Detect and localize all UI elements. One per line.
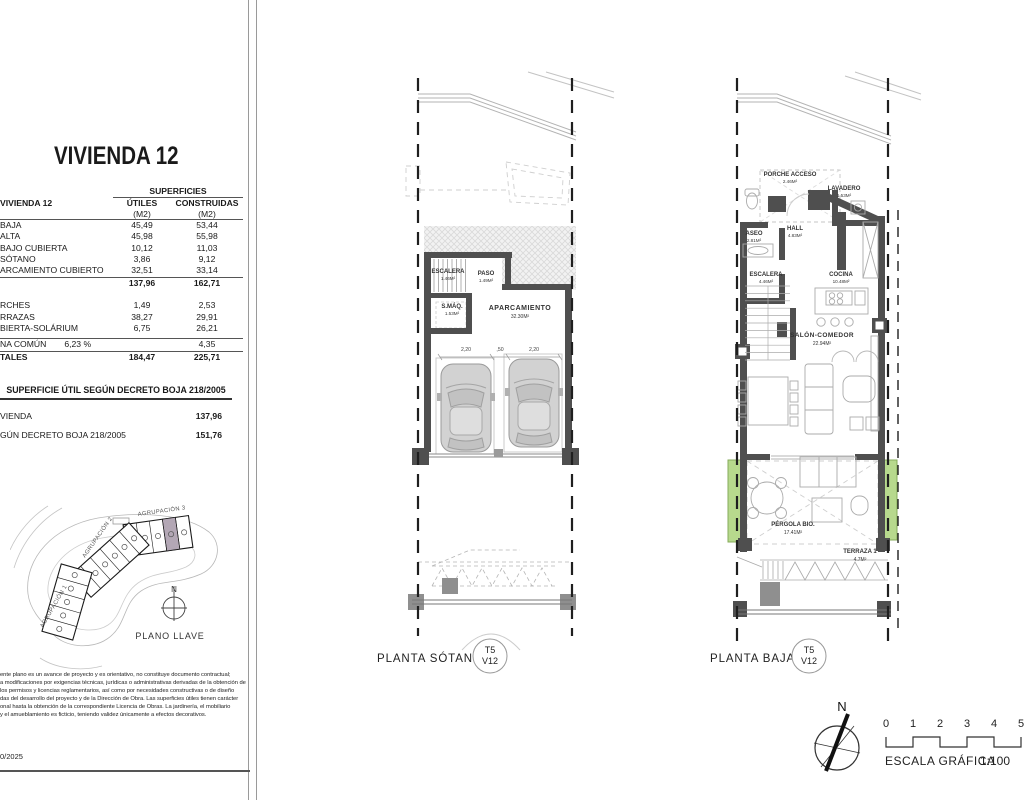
badge-type: T5: [485, 645, 496, 655]
svg-text:3: 3: [964, 718, 970, 730]
exterior-walk-lines: [412, 600, 572, 604]
table-unit-label: VIVIENDA 12: [0, 198, 113, 209]
room-paso-area: 1.49M²: [479, 278, 494, 283]
terrace-post: [760, 582, 780, 606]
graphic-scale-bar: [886, 737, 1021, 747]
scale-tick-labels: 0 1 2 3 4 5: [883, 718, 1024, 730]
terrace-edge-lines: [737, 610, 891, 614]
pouf: [850, 417, 863, 430]
car-right: [505, 359, 563, 447]
table-row: SÓTANO 3,86 9,12: [0, 254, 243, 265]
panel-divider-line: [256, 0, 257, 800]
plan-baja: PORCHE ACCESO 2.46M² LAVADERO 1.53M² ASE…: [705, 70, 1024, 700]
table-row: ARCAMIENTO CUBIERTO 32,51 33,14: [0, 265, 243, 276]
badge-unit: V12: [801, 656, 817, 666]
decreto-row: VIENDA 137,96: [0, 411, 232, 421]
page-title: VIVIENDA 12: [54, 142, 179, 171]
car-left: [437, 364, 495, 452]
outdoor-sofa: [800, 457, 856, 487]
kitchen-island: [815, 288, 868, 314]
room-porche-label: PORCHE ACCESO: [764, 172, 817, 178]
toilet-fixture: [747, 193, 758, 209]
room-lavadero-label: LAVADERO: [828, 186, 861, 192]
room-escalera-label: ESCALERA: [431, 269, 465, 275]
stool: [817, 318, 825, 326]
room-aseo-label: ASEO: [745, 231, 762, 237]
decreto-header: SUPERFICIE ÚTIL SEGÚN DECRETO BOJA 218/2…: [0, 385, 232, 400]
scale-label: ESCALA GRÁFICA: [885, 753, 995, 768]
dim-pier: ,50: [496, 347, 503, 353]
wall-box-window: [876, 322, 884, 330]
decreto-row: GÚN DECRETO BOJA 218/2005 151,76: [0, 430, 232, 440]
room-aseo-area: 2.81M²: [747, 238, 762, 243]
north-compass-icon: [814, 714, 860, 771]
wall-box-window: [739, 348, 747, 356]
key-plan-north-label: N: [171, 585, 177, 594]
outdoor-lounger: [812, 498, 842, 522]
table-row: RRAZAS 38,27 29,91: [0, 312, 243, 323]
exterior-stair-below: [418, 550, 572, 586]
sliding-glass-door: [771, 456, 854, 459]
disclaimer-text: ente plano es un avance de proyecto y es…: [0, 671, 252, 720]
room-hall-label: HALL: [787, 226, 803, 232]
baja-caption: PLANTA BAJA: [710, 653, 795, 665]
site-road-lines: [737, 72, 921, 144]
table-row: RCHES 1,49 2,53: [0, 300, 243, 311]
room-pergola-area: 17.41M²: [784, 530, 803, 536]
stool: [845, 318, 853, 326]
table-common-row: NA COMÚN6,23 % 4,35: [0, 339, 243, 350]
room-pergola-label: PÉRGOLA BIO.: [771, 520, 815, 528]
svg-text:0: 0: [883, 718, 889, 730]
key-plan: AGRUPACIÓN 3 AGRUPACIÓN 2 AGRUPACIÓN 1 N…: [10, 498, 240, 673]
outdoor-table: [751, 482, 783, 514]
baja-room-labels: PORCHE ACCESO 2.46M² LAVADERO 1.53M² ASE…: [745, 172, 877, 563]
site-dashed-shapes: [406, 162, 570, 205]
svg-text:4: 4: [991, 718, 997, 730]
svg-text:2: 2: [937, 718, 943, 730]
badge-unit: V12: [482, 656, 498, 666]
room-aparcamiento-area: 32.30M²: [511, 314, 530, 320]
badge-type: T5: [804, 645, 815, 655]
scale-ratio: 1:100: [980, 754, 1010, 768]
decreto-table: SUPERFICIE ÚTIL SEGÚN DECRETO BOJA 218/2…: [0, 385, 232, 440]
north-label: N: [837, 699, 846, 714]
room-salon-label: SALÓN-COMEDOR: [790, 330, 854, 339]
key-plan-caption: PLANO LLAVE: [135, 631, 204, 641]
armchair: [843, 376, 875, 402]
sink-fixture: [743, 244, 773, 257]
room-cocina-label: COCINA: [829, 272, 853, 278]
dim-bay2: 2,20: [529, 347, 539, 353]
stool: [831, 318, 839, 326]
key-plan-group-1: [42, 564, 92, 640]
footer-north-and-scale: N 0 1 2 3 4 5 ESCALA GRÁFICA 1:100: [780, 695, 1024, 795]
table-row: BAJA 45,49 53,44: [0, 220, 243, 231]
cars: [437, 359, 563, 452]
room-smaq-label: S.MÁQ.: [441, 303, 463, 310]
baja-badge: T5 V12: [792, 639, 826, 673]
col-header-utiles: ÚTILES: [113, 198, 171, 209]
sotano-caption: PLANTA SÓTANO: [377, 652, 483, 665]
svg-text:5: 5: [1018, 718, 1024, 730]
outdoor-chair: [851, 496, 868, 515]
table-group-header: SUPERFICIES: [113, 186, 243, 198]
dining-table: [748, 377, 788, 425]
panel-bottom-rule: [0, 770, 250, 772]
plan-sotano: ESCALERA 1.46M² PASO 1.49M² S.MÁQ. 1.53M…: [370, 70, 615, 700]
pouf: [866, 417, 879, 430]
dim-bay1: 2,20: [461, 347, 471, 353]
table-row: ALTA 45,98 55,98: [0, 231, 243, 242]
room-terraza-label: TERRAZA 1: [843, 549, 877, 555]
door-swing-arc: [787, 194, 809, 216]
green-planters: [728, 460, 897, 542]
room-escalera-area: 1.46M²: [441, 276, 456, 281]
table-subtotal-row: 137,96 162,71: [0, 278, 243, 289]
table-row: BIERTA-SOLÁRIUM 6,75 26,21: [0, 323, 243, 334]
table-total-row: TALES 184,47 225,71: [0, 352, 243, 363]
room-porche-area: 2.46M²: [783, 179, 798, 184]
plot-boundary-lines: [737, 78, 898, 644]
room-escalera-area: 4.46M²: [759, 279, 774, 284]
col-header-construidas: CONSTRUIDAS: [171, 198, 243, 209]
date-stamp: 0/2025: [0, 752, 23, 761]
room-aparcamiento-label: APARCAMIENTO: [489, 305, 552, 312]
room-salon-area: 22.94M²: [813, 341, 832, 347]
sofa: [805, 364, 833, 434]
table-row: BAJO CUBIERTA 10,12 11,03: [0, 243, 243, 254]
surface-table: SUPERFICIES VIVIENDA 12 ÚTILES CONSTRUID…: [0, 186, 243, 363]
site-road-lines: [418, 72, 614, 140]
room-paso-label: PASO: [478, 271, 495, 277]
pergola-outline: [747, 461, 878, 544]
room-cocina-area: 10.48M²: [833, 279, 850, 284]
room-escalera-label: ESCALERA: [749, 272, 783, 278]
panel-divider-line: [248, 0, 249, 800]
room-lavadero-area: 1.53M²: [837, 193, 852, 198]
sotano-badge: T5 V12: [473, 639, 507, 673]
room-smaq-area: 1.53M²: [445, 311, 460, 316]
room-terraza-area: 4.7M²: [854, 557, 867, 563]
svg-text:1: 1: [910, 718, 916, 730]
exterior-posts: [408, 578, 576, 610]
room-hall-area: 4.83M²: [788, 233, 803, 238]
